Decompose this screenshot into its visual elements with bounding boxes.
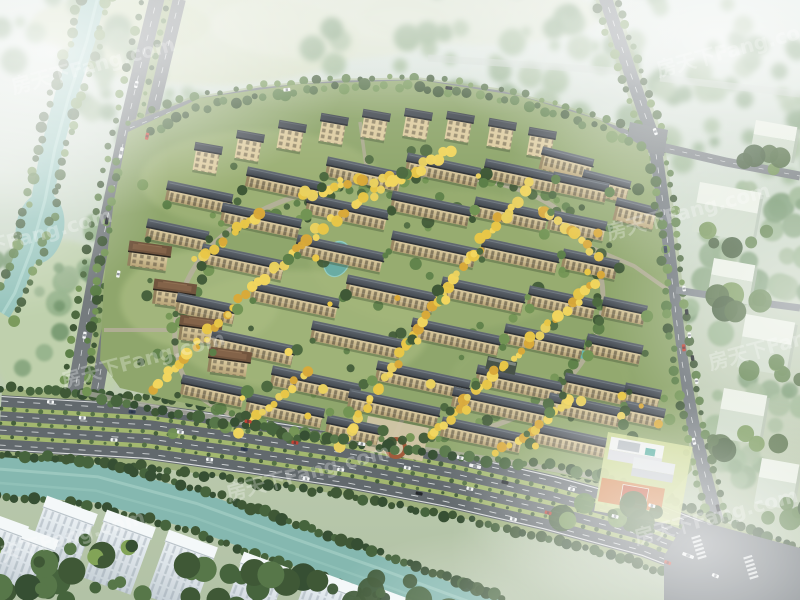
aerial-render-image: 房天下Fang.com 房天下Fang.com 房天下Fang.com 房天下F… <box>0 0 800 600</box>
scene-svg: 房天下Fang.com 房天下Fang.com 房天下Fang.com 房天下F… <box>0 0 800 600</box>
